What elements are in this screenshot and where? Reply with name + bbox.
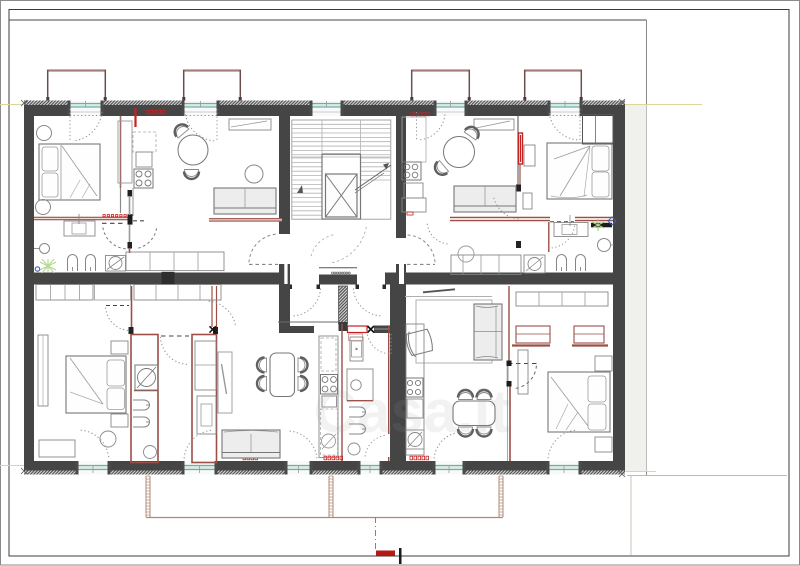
svg-text:Casa.it: Casa.it	[314, 378, 511, 445]
